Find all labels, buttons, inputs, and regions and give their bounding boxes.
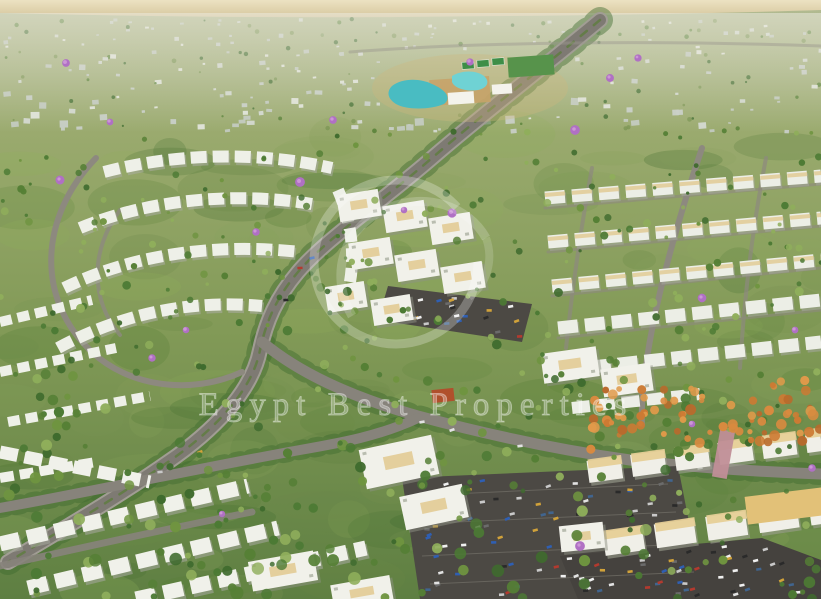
clubhouse bbox=[448, 91, 475, 105]
watermark-text: Egypt Best Properties bbox=[199, 387, 634, 423]
sports-field bbox=[507, 54, 554, 77]
clubhouse-2 bbox=[492, 83, 513, 94]
aerial-render-canvas: Egypt Best Properties bbox=[0, 0, 821, 599]
aerial-masterplan-photo: Egypt Best Properties bbox=[0, 0, 821, 599]
